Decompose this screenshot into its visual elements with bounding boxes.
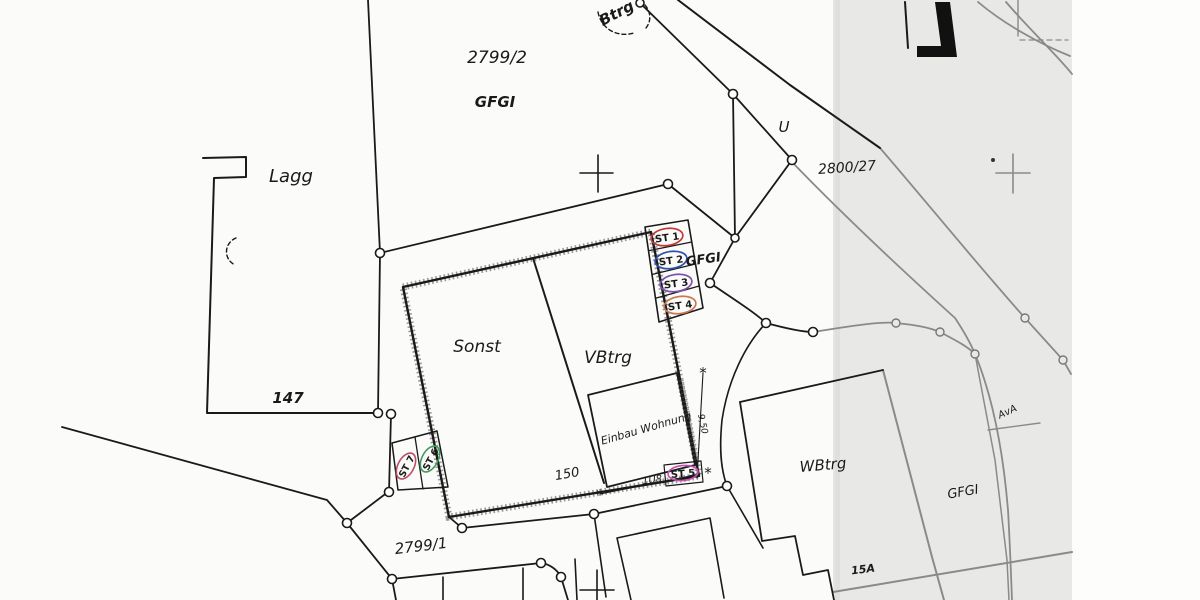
map-canvas: * * * ST 1 ST 2 ST 3 ST 4 G (0, 0, 1200, 600)
label-lagg: Lagg (269, 166, 313, 187)
label-parcel-2799-2: 2799/2 (467, 48, 527, 68)
label-parcel-147: 147 (272, 389, 304, 407)
scanned-cadastral-map: * * * ST 1 ST 2 ST 3 ST 4 G (0, 0, 1200, 600)
scan-shadow-band (835, 0, 1072, 600)
label-vbtrg: VBtrg (584, 348, 632, 368)
asterisk-mark: * (699, 364, 707, 382)
label-u: U (779, 118, 790, 136)
label-sonst: Sonst (453, 337, 502, 357)
scan-band-edge (833, 0, 840, 600)
asterisk-mark: * (704, 464, 712, 482)
label-gfgi-top: GFGI (475, 93, 516, 111)
asterisk-mark: * (596, 486, 604, 504)
scan-page-edge (1072, 0, 1200, 600)
stamp-st5: ST 5 (670, 468, 695, 481)
